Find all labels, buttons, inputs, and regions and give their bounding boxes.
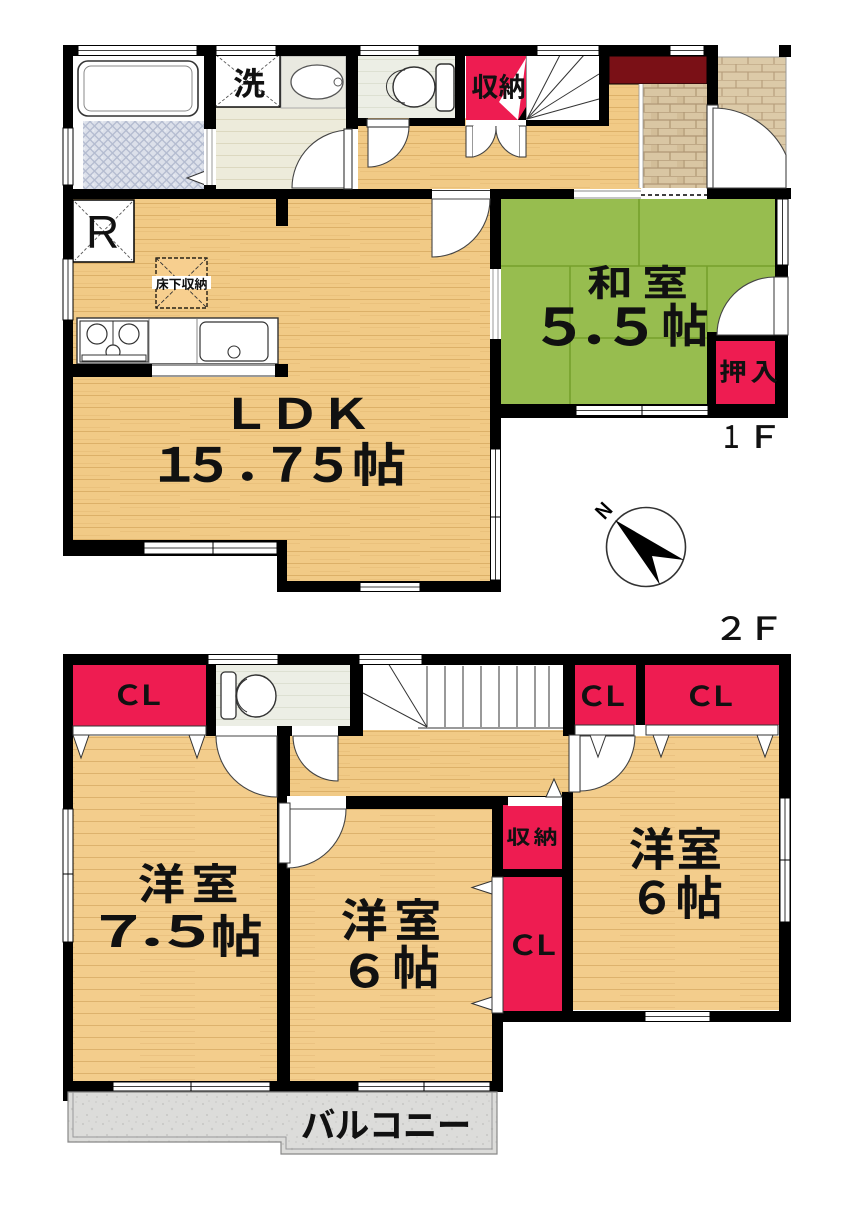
svg-text:R: R [86, 206, 119, 258]
